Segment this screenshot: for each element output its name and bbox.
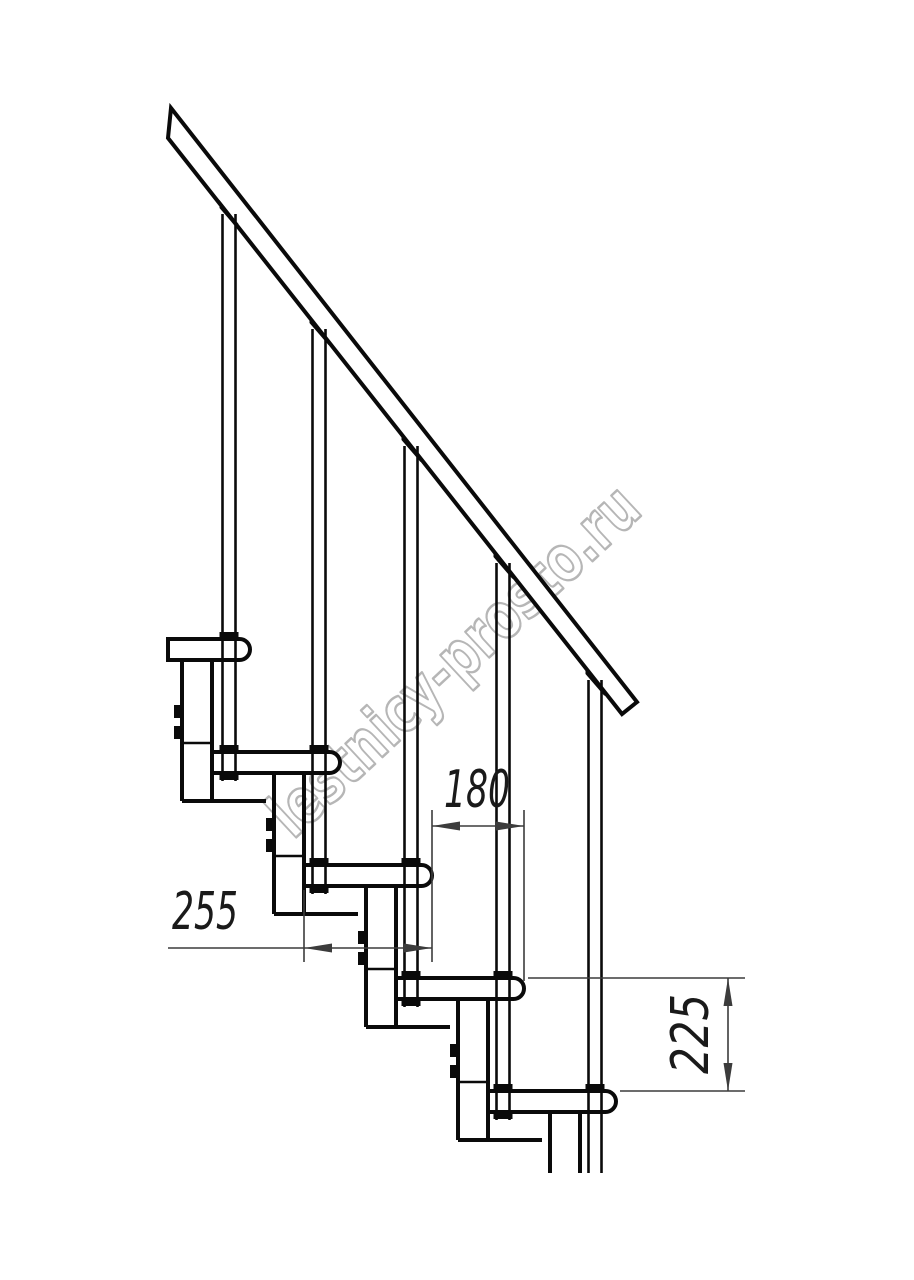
tread-5: [488, 1091, 616, 1112]
nut: [310, 886, 329, 893]
nut: [220, 632, 239, 639]
bolt-tab: [358, 952, 366, 965]
nut: [494, 971, 513, 978]
nut: [586, 1084, 605, 1091]
tread-2: [212, 752, 340, 773]
nut: [220, 745, 239, 752]
bolt-tab: [266, 818, 274, 831]
bolt-tab: [450, 1065, 458, 1078]
tread-4: [396, 978, 524, 999]
nut: [310, 858, 329, 865]
nut: [494, 1112, 513, 1119]
bolt-tab: [174, 726, 182, 739]
staircase-technical-drawing: lestnicy-prosto.ru: [0, 0, 914, 1280]
nut: [220, 773, 239, 780]
nut: [402, 971, 421, 978]
nut: [494, 1084, 513, 1091]
bolt-tab: [266, 839, 274, 852]
tread-1: [168, 639, 250, 660]
bolt-tab: [450, 1044, 458, 1057]
dimension-value-180: 180: [444, 760, 510, 820]
nut: [310, 745, 329, 752]
nut: [402, 858, 421, 865]
dimension-value-255: 255: [172, 882, 238, 942]
dimension-value-225: 225: [661, 994, 721, 1074]
bolt-tab: [358, 931, 366, 944]
tread-3: [304, 865, 432, 886]
bolt-tab: [174, 705, 182, 718]
nut: [402, 999, 421, 1006]
